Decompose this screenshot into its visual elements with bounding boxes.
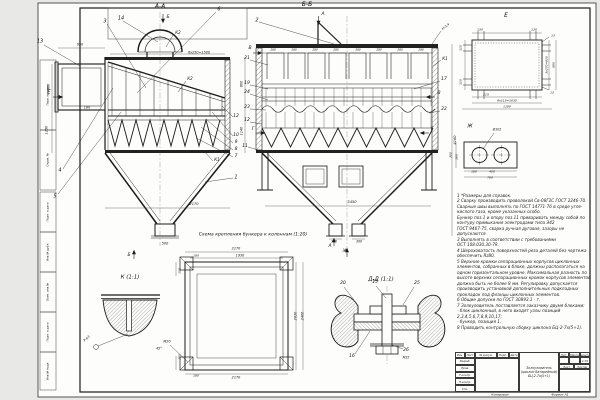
- tb-row-tkontr: Т.контр.: [455, 372, 475, 379]
- tb-row-nkontr: Н.контр.: [455, 378, 475, 385]
- tb-signatures-area: [475, 358, 519, 392]
- drawing-sheet-page: А-АБ3146134512109871К2К2К16х250=15009508…: [0, 0, 600, 400]
- technical-note-line: 8 Проводить контрольную сборку циклона Б…: [457, 325, 588, 330]
- tb-scale-value: 1:15: [580, 357, 590, 364]
- tb-org-area: [559, 369, 590, 392]
- tb-document-name: Золоуловитель (циклон батарейный) БЦ-2-7…: [519, 352, 559, 392]
- tb-name-line3: БЦ-2-7х(5+1): [528, 374, 550, 378]
- technical-notes: 1 *Размеры для справок.2 Сварку производ…: [457, 193, 588, 330]
- tb-row-prov: Пров.: [455, 365, 475, 372]
- tb-mass-value: [569, 357, 580, 364]
- technical-note-line: элементов, собранных в блоке, должны рас…: [457, 264, 588, 269]
- technical-note-line: производить установкой дополнительных по…: [457, 286, 588, 291]
- title-block: Изм. Лист № докум. Подп. Дата Разраб. Пр…: [455, 352, 590, 392]
- tb-row-razrab: Разраб.: [455, 358, 475, 365]
- technical-note-line: высоте верхних сепарационных кромок корп…: [457, 275, 588, 280]
- tb-row-utv: Утв.: [455, 385, 475, 392]
- tb-lit-value: [559, 357, 569, 364]
